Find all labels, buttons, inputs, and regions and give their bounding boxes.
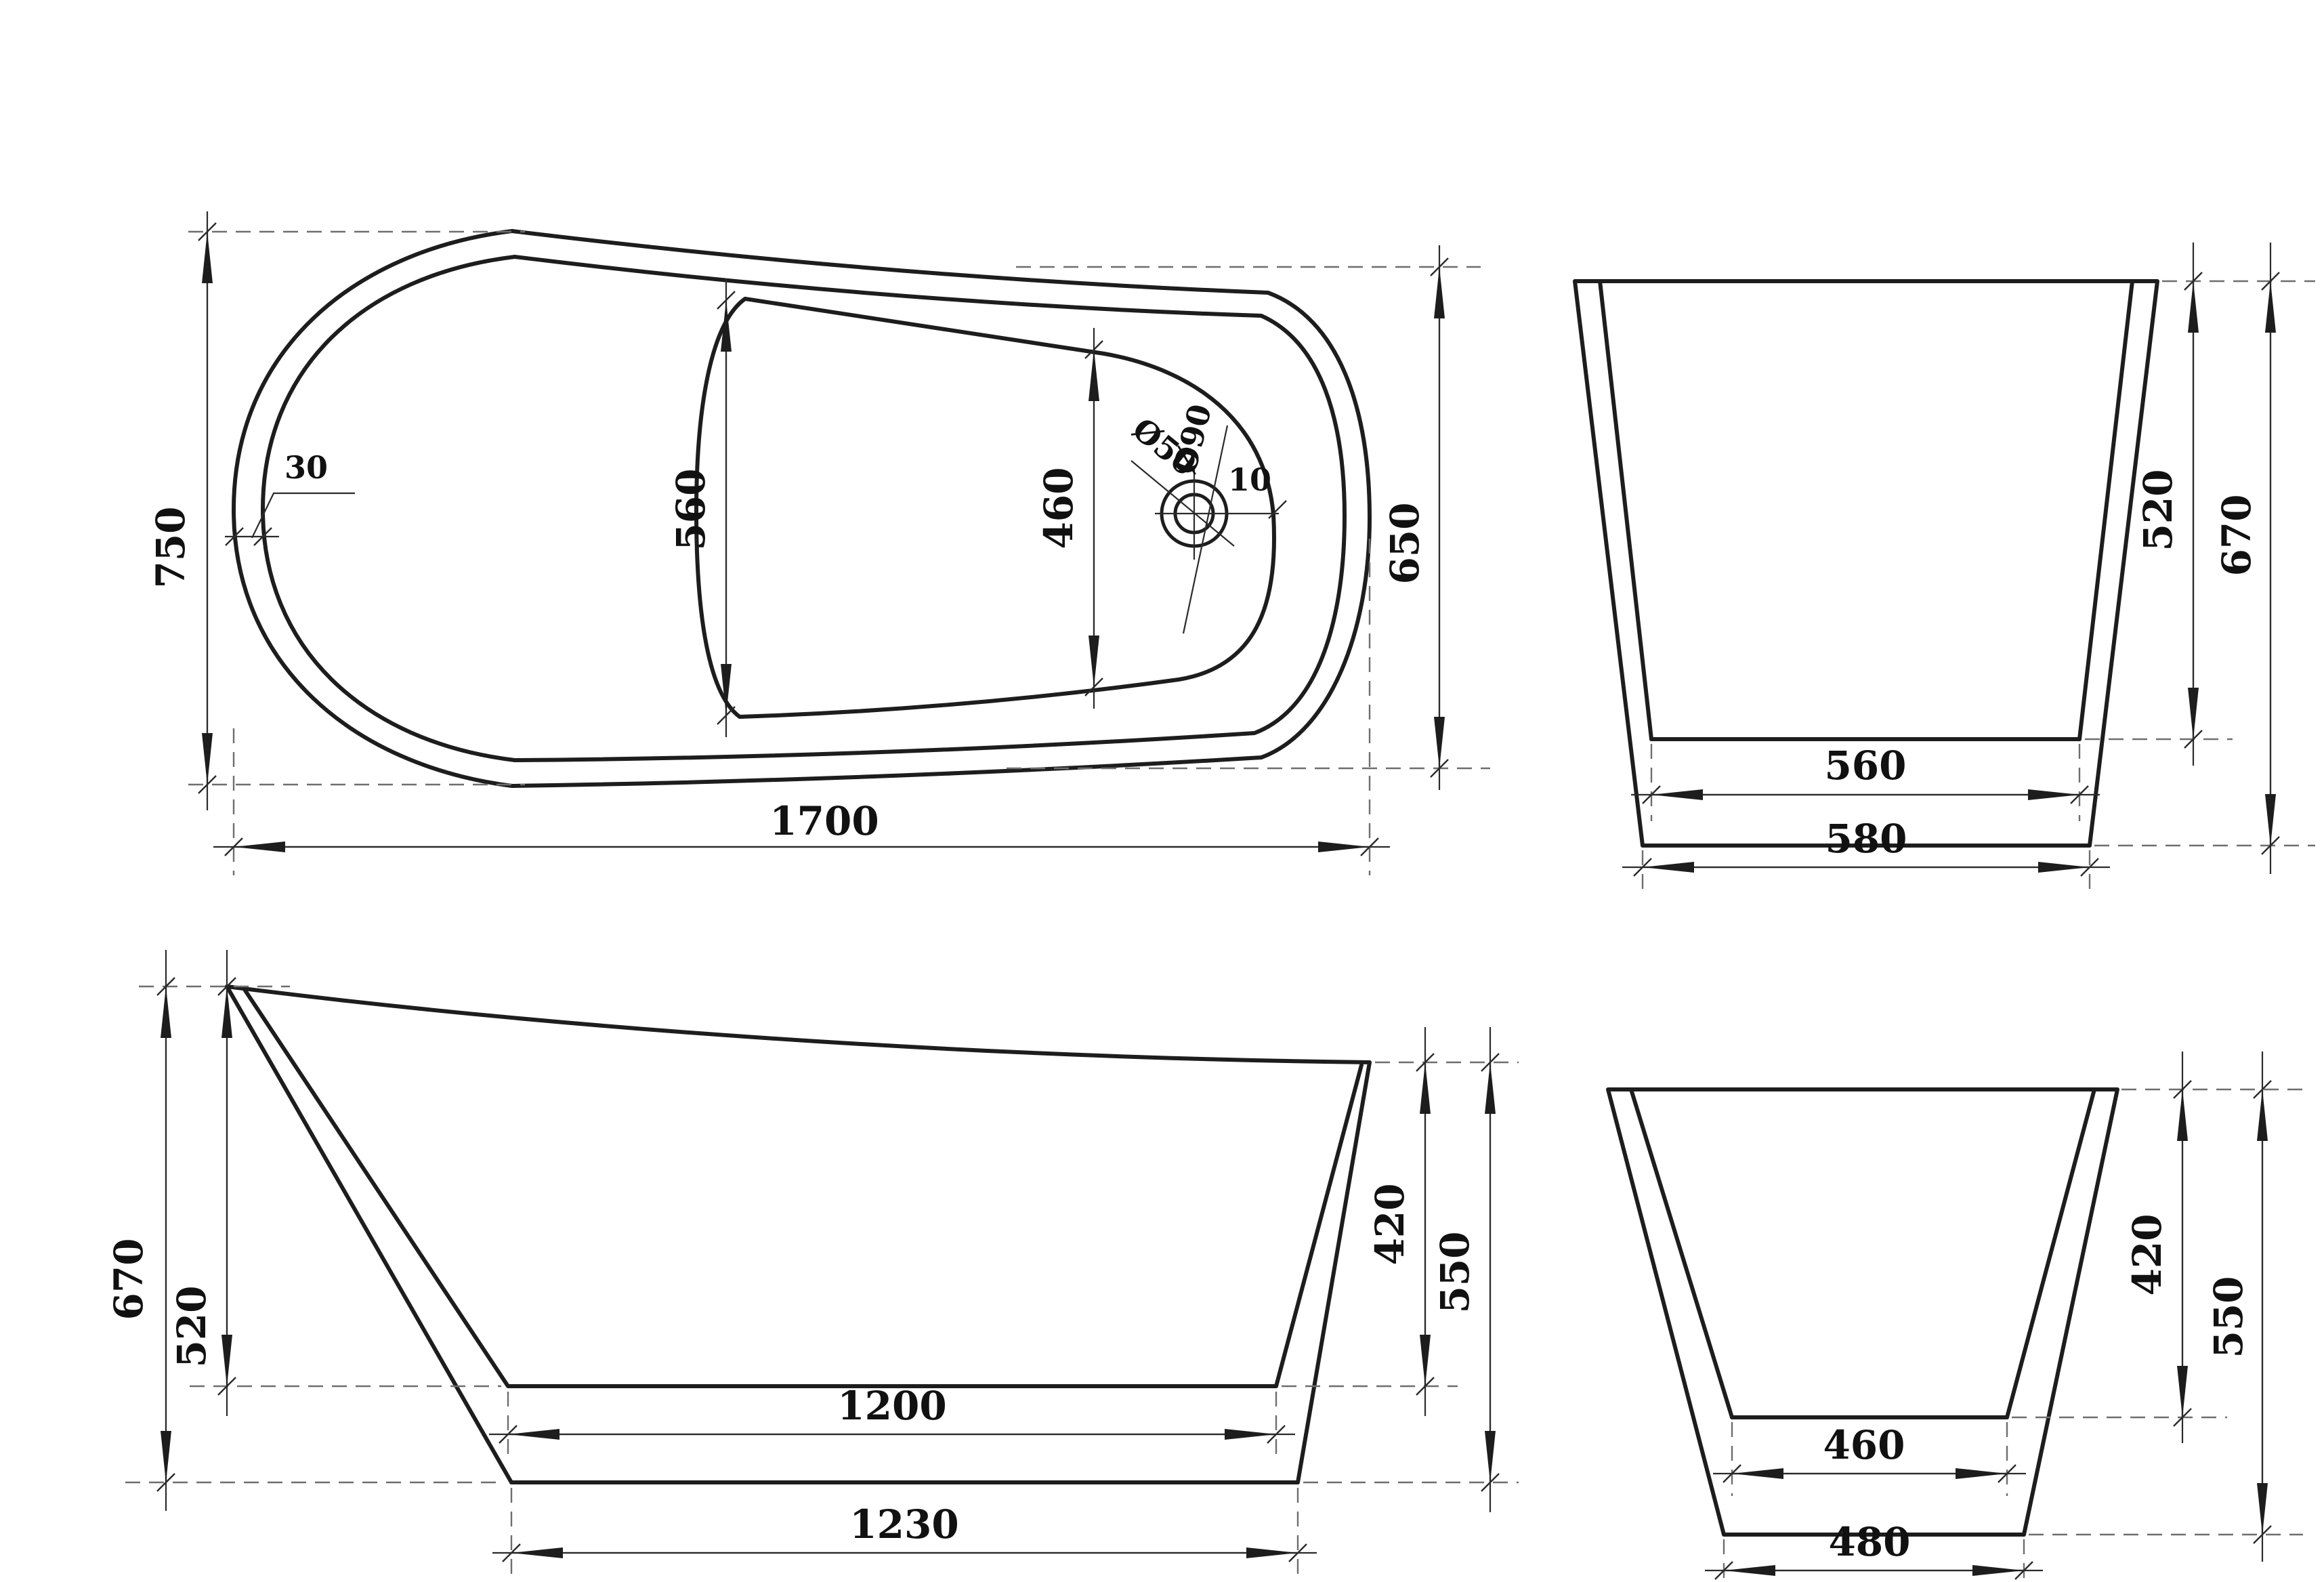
- side-outer-outline: [227, 986, 1370, 1482]
- head-extension-dashed-lines: [1643, 281, 2315, 893]
- side-view: 670 520 1200 1230 420 550: [106, 950, 1519, 1576]
- dim-side-foot-height-label: 550: [1432, 1231, 1478, 1313]
- head-end-view: 560 580 520 670: [1575, 243, 2315, 893]
- dim-rim-width-label: 30: [284, 449, 328, 486]
- dim-side-height-label: 670: [106, 1238, 152, 1320]
- dim-overall-length-label: 1700: [769, 798, 879, 844]
- dim-drain-offset-label: 10: [1228, 461, 1271, 498]
- dim-head-height-label: 670: [2214, 494, 2260, 576]
- plan-view: 1700 750 650 560 460 30 10 Ø50 Ø90: [148, 211, 1490, 875]
- dim-width-left-label: 750: [148, 506, 194, 588]
- dim-foot-height-label: 550: [2205, 1276, 2252, 1358]
- dim-foot-inner-height-label: 420: [2124, 1213, 2170, 1295]
- dim-basin-width-right-label: 460: [1036, 467, 1082, 549]
- head-dimension-ticks: [1634, 272, 2279, 876]
- dim-bottom-inner-length-label: 1200: [837, 1383, 946, 1429]
- foot-dimension-ticks: [1715, 1081, 2271, 1579]
- dim-basin-width-left-label: 560: [668, 468, 714, 550]
- dim-width-right-label: 650: [1382, 502, 1428, 584]
- dim-foot-outer-width-label: 480: [1828, 1519, 1910, 1565]
- bathtub-technical-drawing: 1700 750 650 560 460 30 10 Ø50 Ø90 560 5…: [0, 0, 2324, 1582]
- side-inner-wall: [245, 991, 1361, 1386]
- plan-dimension-ticks: [198, 223, 1448, 856]
- dim-drain-recess-label: Ø90: [1166, 400, 1219, 478]
- dim-head-outer-width-label: 580: [1825, 816, 1907, 862]
- head-inner-right-wall: [2079, 281, 2132, 739]
- foot-end-view: 460 480 420 550: [1608, 1052, 2303, 1582]
- dim-bottom-outer-length-label: 1230: [849, 1501, 958, 1547]
- dim-side-depth-label: 520: [169, 1285, 215, 1367]
- drawing-sheet: 1700 750 650 560 460 30 10 Ø50 Ø90 560 5…: [0, 0, 2324, 1582]
- head-inner-left-wall: [1600, 281, 1651, 739]
- dim-foot-inner-width-label: 460: [1823, 1422, 1905, 1468]
- tub-rim-inner-outline: [263, 257, 1345, 760]
- dim-head-inner-width-label: 560: [1824, 743, 1906, 789]
- dim-head-inner-depth-label: 520: [2135, 469, 2181, 551]
- dim-side-foot-inner-height-label: 420: [1367, 1183, 1413, 1265]
- side-extension-dashed-lines: [125, 986, 1519, 1576]
